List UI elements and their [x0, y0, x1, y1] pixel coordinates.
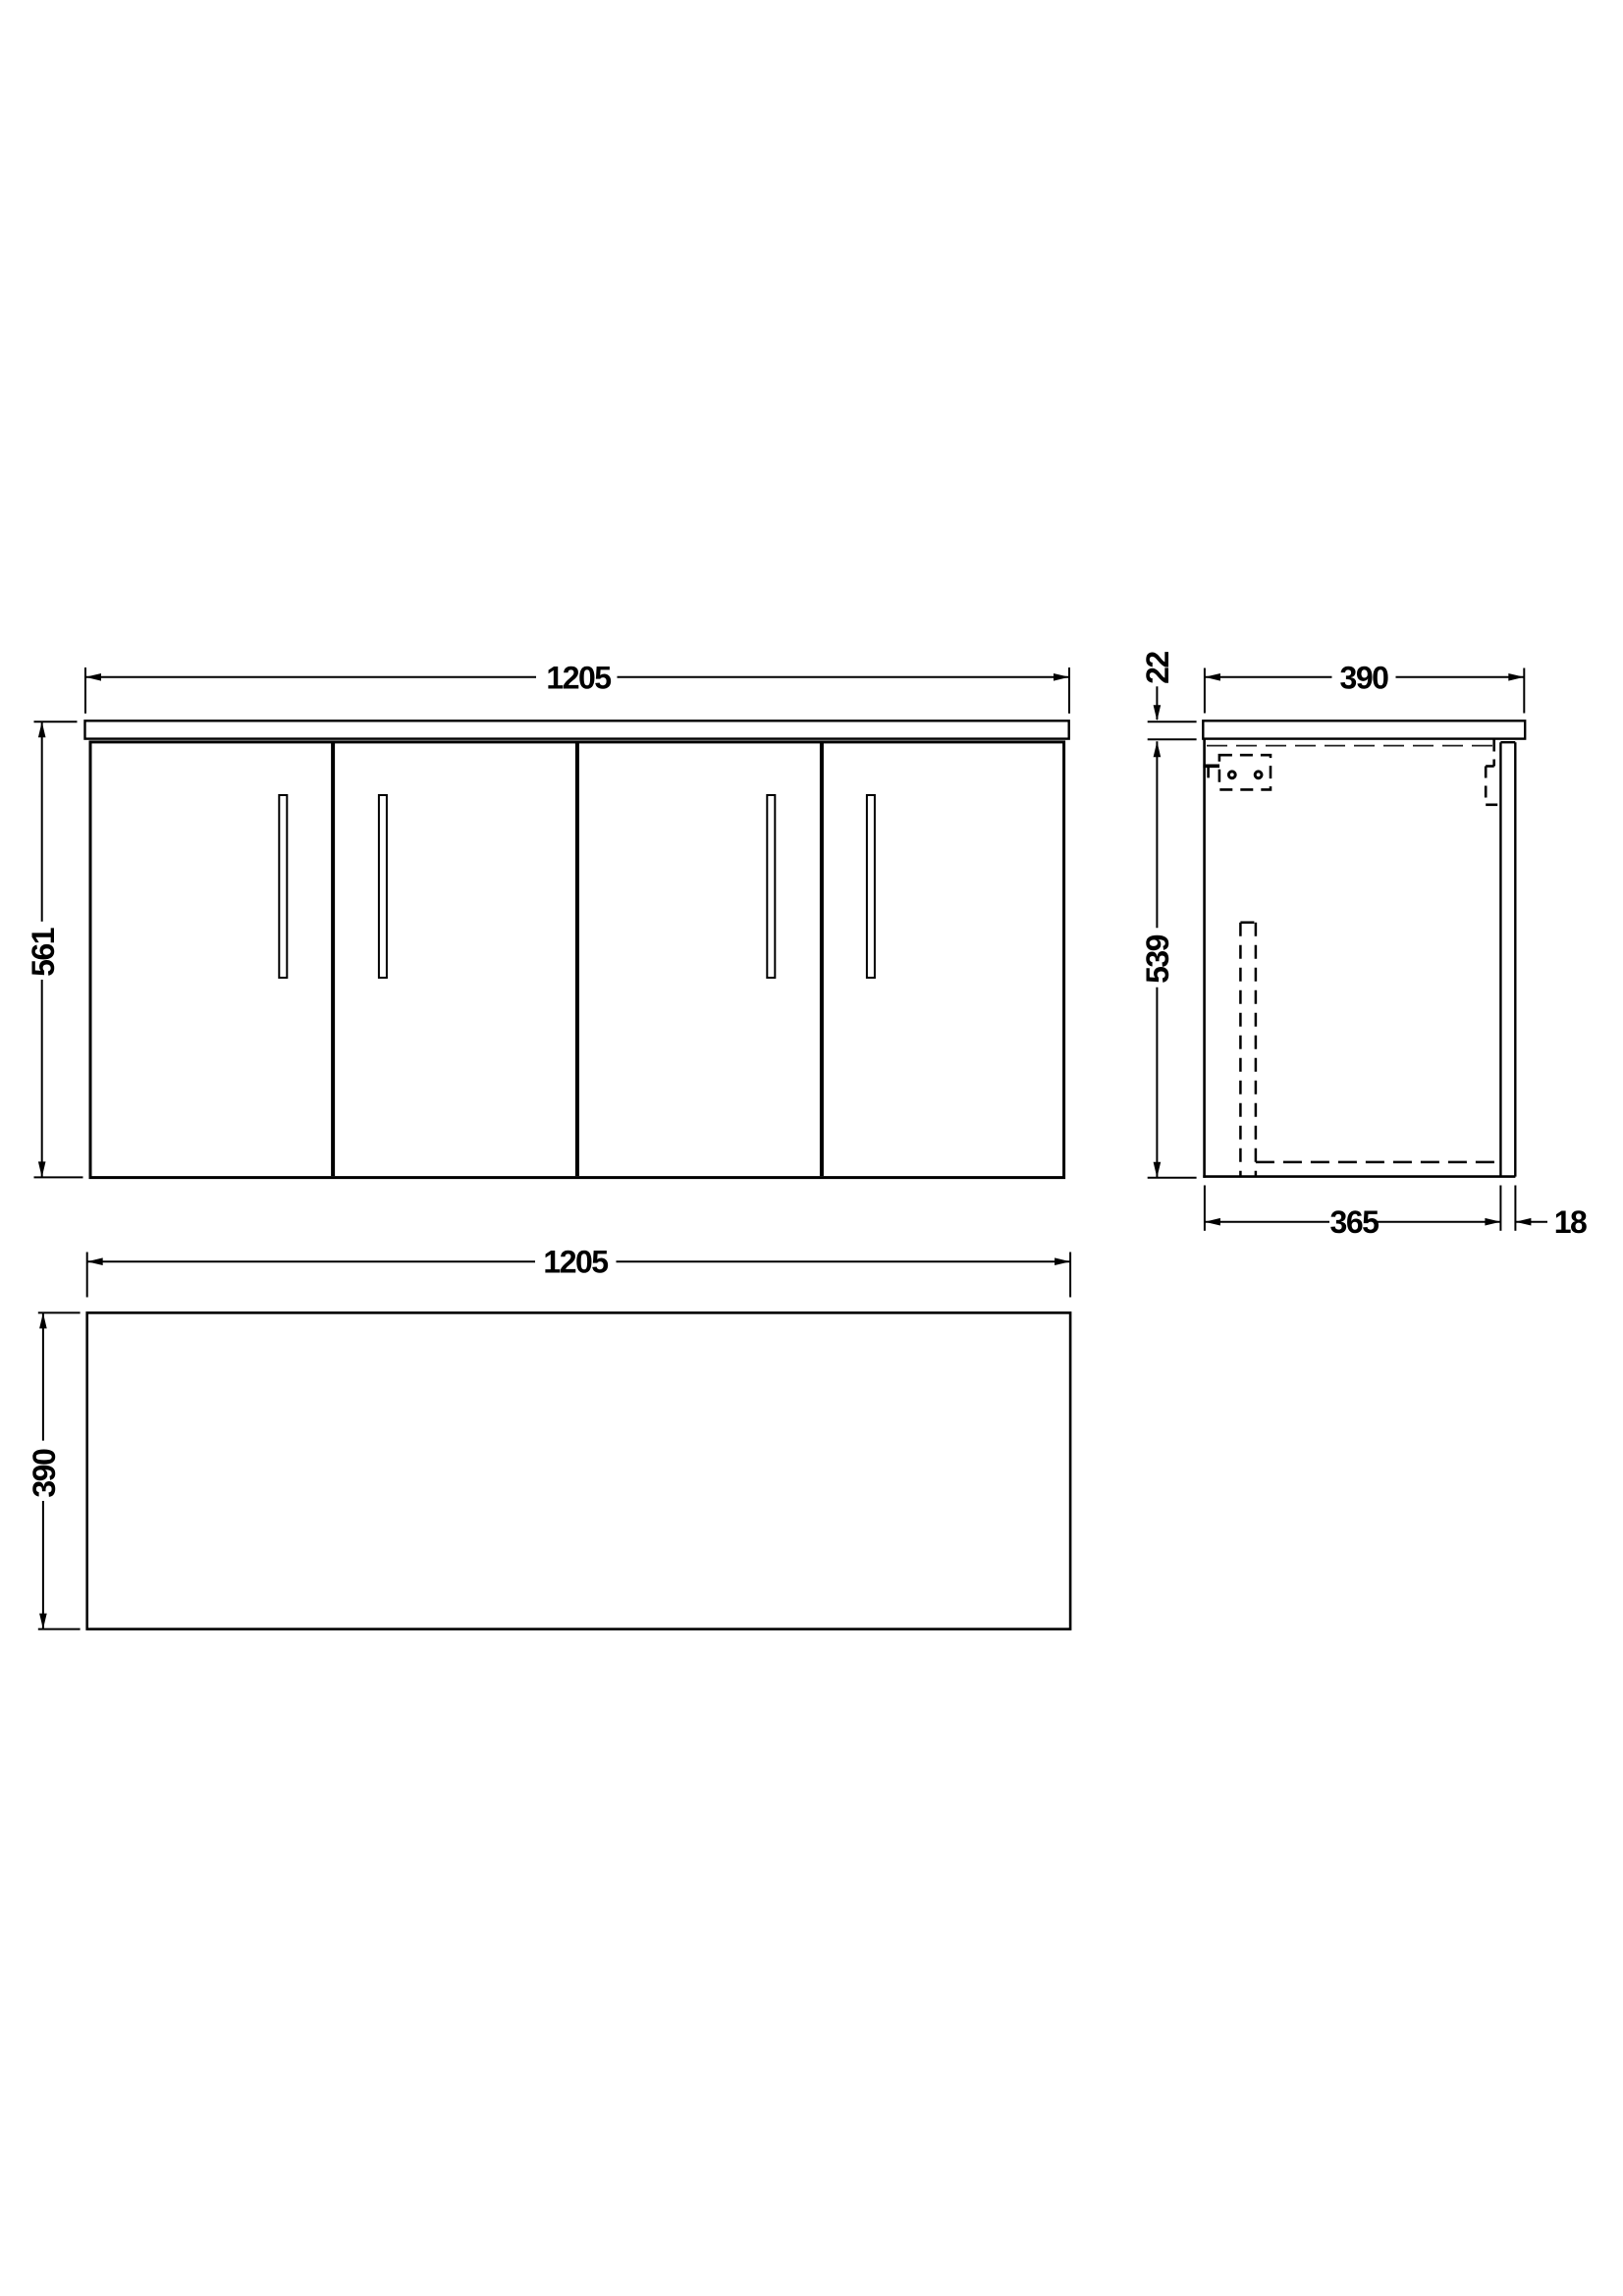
svg-text:390: 390	[1340, 661, 1389, 696]
svg-text:561: 561	[26, 928, 61, 977]
svg-text:18: 18	[1554, 1204, 1587, 1240]
svg-text:365: 365	[1330, 1204, 1380, 1240]
svg-text:539: 539	[1140, 934, 1175, 984]
svg-text:390: 390	[27, 1449, 62, 1498]
svg-text:1205: 1205	[543, 1245, 608, 1280]
svg-text:22: 22	[1140, 652, 1175, 684]
svg-text:1205: 1205	[546, 661, 611, 696]
